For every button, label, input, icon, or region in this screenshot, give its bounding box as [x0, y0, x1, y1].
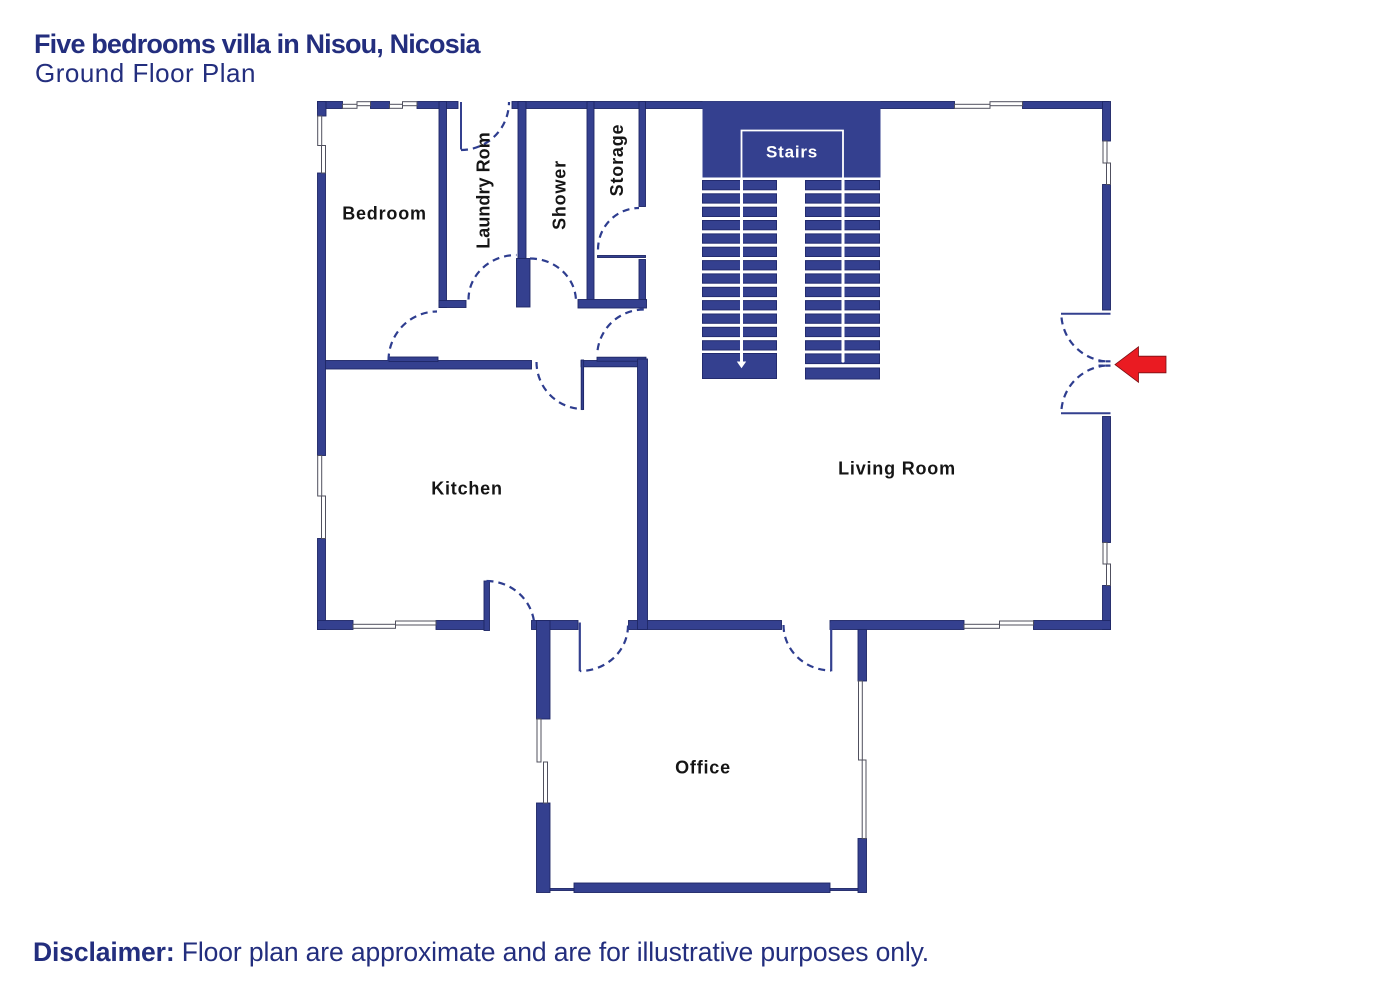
svg-text:Stairs: Stairs — [766, 143, 818, 162]
svg-text:Ground Floor Plan: Ground Floor Plan — [35, 58, 256, 88]
svg-text:Laundry Rom: Laundry Rom — [473, 132, 493, 249]
svg-text:Bedroom: Bedroom — [342, 203, 427, 223]
svg-text:Disclaimer: Floor plan are app: Disclaimer: Floor plan are approximate a… — [33, 937, 929, 967]
svg-text:Living Room: Living Room — [838, 459, 956, 479]
svg-text:Office: Office — [675, 758, 731, 778]
svg-text:Storage: Storage — [607, 124, 627, 197]
svg-text:Five bedrooms villa in Nisou,: Five bedrooms villa in Nisou, Nicosia — [34, 29, 482, 59]
svg-text:Kitchen: Kitchen — [431, 479, 503, 499]
svg-text:Shower: Shower — [549, 160, 569, 230]
